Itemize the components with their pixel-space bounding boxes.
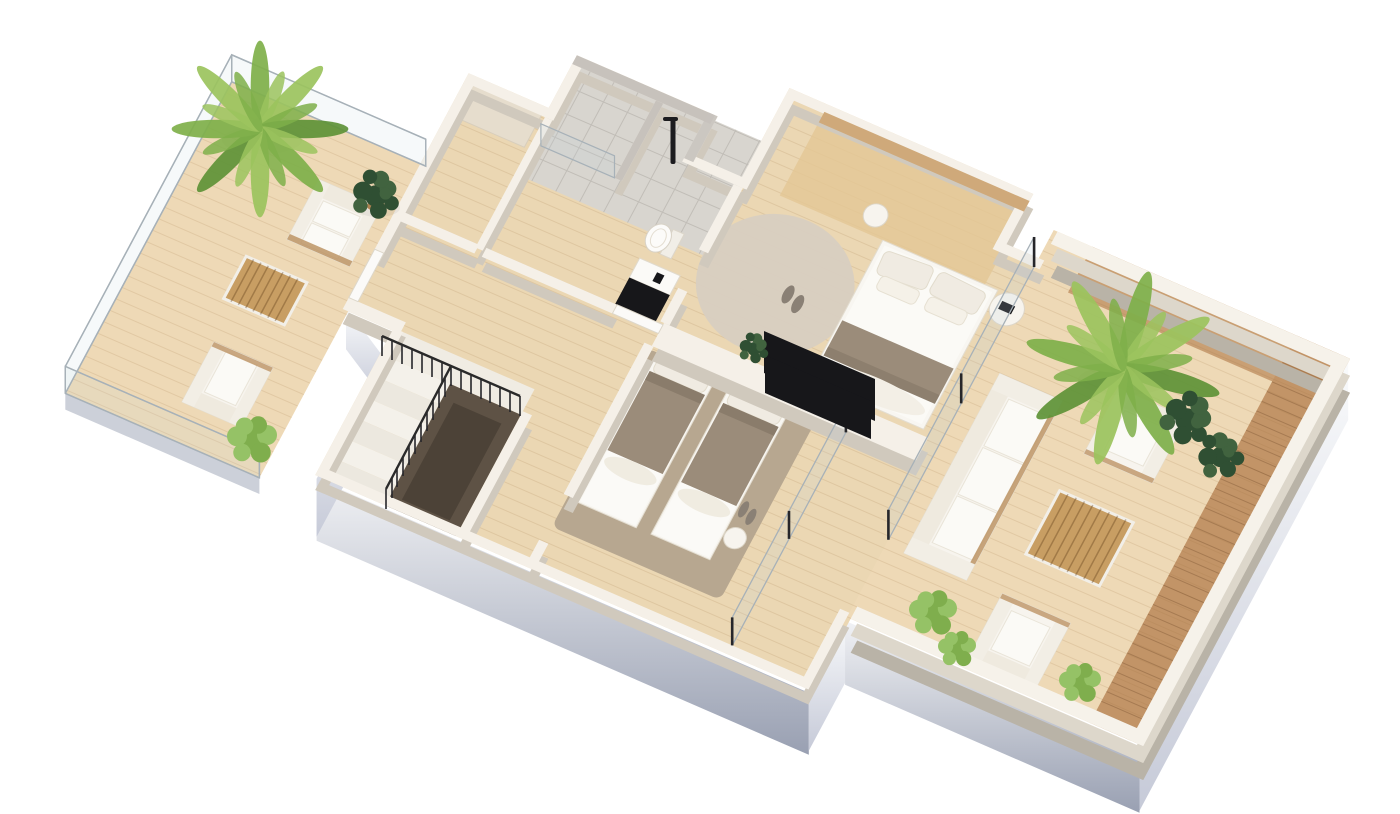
floor-plan-render — [0, 0, 1400, 814]
floor-plan-stage — [0, 0, 1400, 814]
palm-tree-left — [172, 41, 349, 218]
